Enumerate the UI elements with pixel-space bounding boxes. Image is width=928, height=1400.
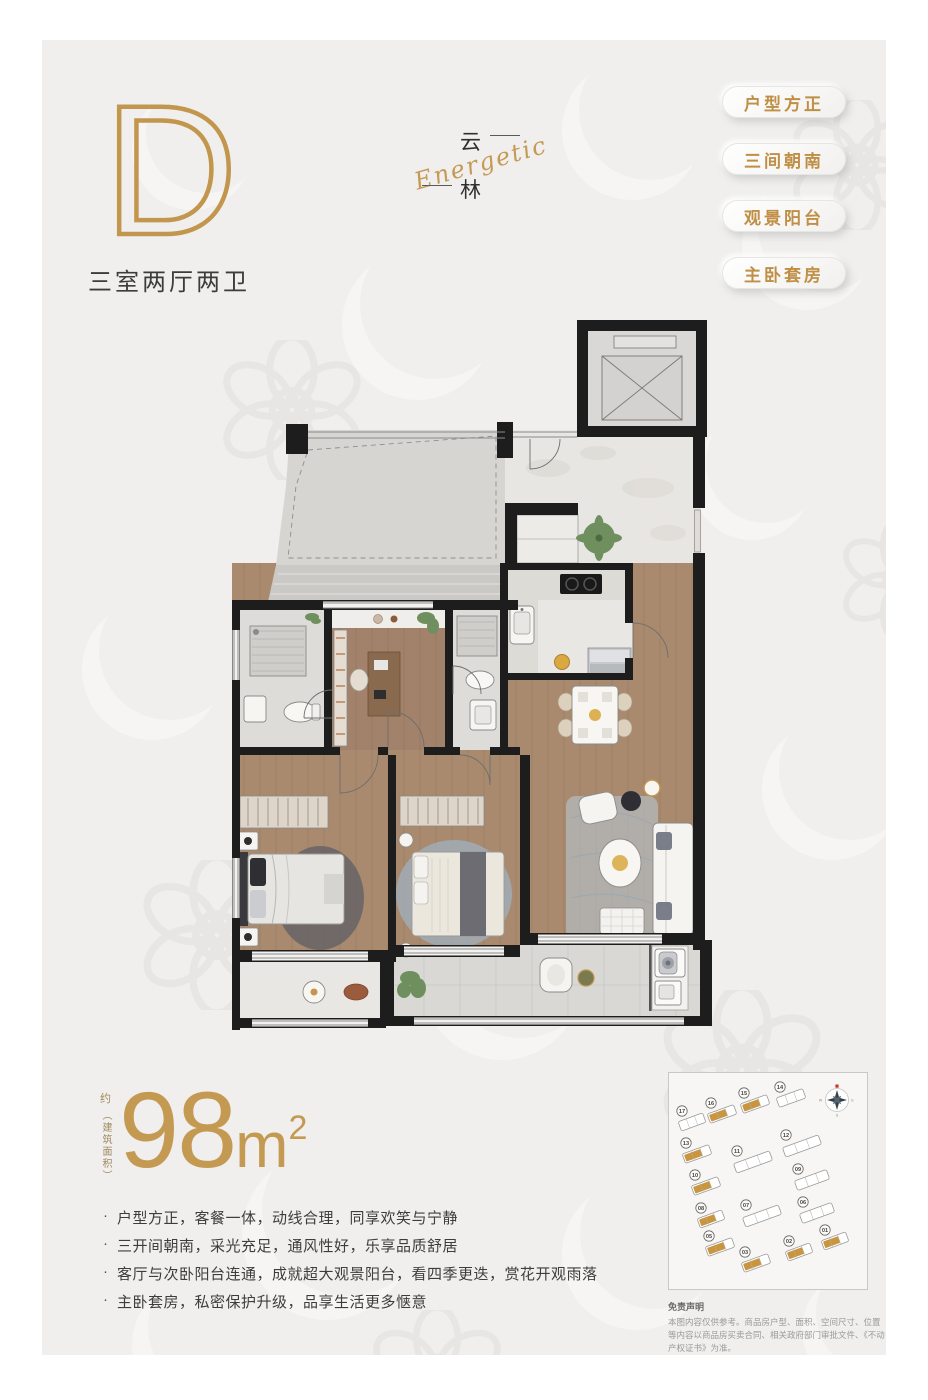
bullet-dot: · [103,1263,117,1280]
compass-icon: W E S [819,1085,854,1118]
svg-text:02: 02 [786,1239,792,1245]
svg-text:13: 13 [683,1141,689,1147]
site-building-05: 05 [704,1231,735,1257]
moon-pattern [762,720,886,860]
unit-letter-glyph: D [104,68,238,266]
badge-master-suite: 主卧套房 [722,257,846,289]
badge-view-balcony: 观景阳台 [722,200,846,232]
logo-rule-top [490,135,520,136]
feature-badges: 户型方正 三间朝南 观景阳台 主卧套房 [722,86,846,289]
site-plan: 17161514131112100908070605030201 W E S [668,1072,868,1290]
area-figure: 约 （建筑面积） 98m2 [98,1082,307,1182]
svg-text:05: 05 [706,1234,712,1240]
brand-logo: 云 Energetic 林 [408,118,568,208]
highlight-text: 三开间朝南，采光充足，通风性好，乐享品质舒居 [117,1235,458,1256]
site-building-08: 08 [696,1203,725,1228]
site-building-06: 06 [798,1197,835,1224]
moon-pattern [82,600,222,740]
site-building-14: 14 [775,1082,806,1108]
unit-layout-label: 三室两厅两卫 [88,262,250,297]
area-unit: m [235,1109,288,1181]
area-value-group: 98m2 [119,1082,307,1182]
site-building-13: 13 [681,1138,712,1164]
site-building-02: 02 [784,1236,813,1261]
logo-rule-bottom [422,185,452,186]
area-approx-label: 约 [100,1090,111,1106]
disclaimer-title: 免责声明 [668,1300,886,1313]
highlight-text: 主卧套房，私密保护升级，品享生活更多惬意 [117,1291,427,1312]
site-building-10: 10 [690,1170,721,1196]
badge-squarish-layout: 户型方正 [722,86,846,118]
unit-letter: D [98,66,248,266]
svg-text:10: 10 [692,1173,698,1179]
laundry-corner [649,945,688,1011]
svg-text:E: E [851,1099,854,1103]
disclaimer-body: 本图内容仅供参考。商品房户型、面积、空间尺寸、位置等内容以商品房买卖合同、相关政… [668,1316,886,1356]
highlight-item: ·客厅与次卧阳台连通，成就超大观景阳台，看四季更迭，赏花开观雨落 [103,1263,703,1284]
svg-text:07: 07 [743,1203,749,1209]
badge-three-south-rooms: 三间朝南 [722,143,846,175]
site-building-12: 12 [781,1130,822,1157]
svg-text:15: 15 [741,1091,747,1097]
site-building-15: 15 [739,1088,770,1114]
svg-text:03: 03 [742,1250,748,1256]
site-building-17: 17 [677,1106,706,1131]
area-value: 98 [119,1069,235,1190]
svg-text:S: S [836,1114,839,1118]
moon-pattern [562,60,702,200]
svg-text:11: 11 [734,1149,740,1155]
poster-page: D 三室两厅两卫 云 Energetic 林 户型方正 三间朝南 观景阳台 主卧… [0,0,928,1400]
site-building-16: 16 [706,1098,737,1124]
highlight-item: ·主卧套房，私密保护升级，品享生活更多惬意 [103,1291,703,1312]
svg-text:08: 08 [698,1206,704,1212]
flower-pattern [842,520,886,640]
svg-text:01: 01 [822,1228,828,1234]
site-building-09: 09 [793,1164,830,1191]
area-superscript: 2 [288,1109,307,1147]
kitchen-stove [560,574,602,594]
highlight-item: ·户型方正，客餐一体，动线合理，同享欢笑与宁静 [103,1207,703,1228]
logo-char-bottom: 林 [460,174,481,204]
bullet-dot: · [103,1291,117,1308]
disclaimer: 免责声明 本图内容仅供参考。商品房户型、面积、空间尺寸、位置等内容以商品房买卖合… [668,1300,886,1356]
site-building-01: 01 [820,1225,849,1250]
area-qualifiers: 约 （建筑面积） [98,1090,113,1182]
svg-text:16: 16 [708,1101,714,1107]
highlight-item: ·三开间朝南，采光充足，通风性好，乐享品质舒居 [103,1235,703,1256]
site-building-07: 07 [741,1200,782,1227]
site-building-11: 11 [732,1146,773,1173]
highlight-text: 客厅与次卧阳台连通，成就超大观景阳台，看四季更迭，赏花开观雨落 [117,1263,598,1284]
kitchen-dish [555,655,570,670]
site-plan-map: 17161514131112100908070605030201 W E S [669,1073,867,1289]
svg-text:06: 06 [800,1200,806,1206]
floor-plan [228,318,712,1032]
kitchen-sink [510,606,534,644]
highlight-list: ·户型方正，客餐一体，动线合理，同享欢笑与宁静 ·三开间朝南，采光充足，通风性好… [103,1207,703,1319]
site-building-03: 03 [740,1247,771,1273]
svg-text:12: 12 [783,1133,789,1139]
bullet-dot: · [103,1207,117,1224]
highlight-text: 户型方正，客餐一体，动线合理，同享欢笑与宁静 [117,1207,458,1228]
svg-text:W: W [819,1099,823,1103]
svg-text:17: 17 [679,1109,685,1115]
svg-text:09: 09 [795,1167,801,1173]
bullet-dot: · [103,1235,117,1252]
svg-text:14: 14 [777,1085,784,1091]
area-paren-label: （建筑面积） [98,1110,113,1182]
